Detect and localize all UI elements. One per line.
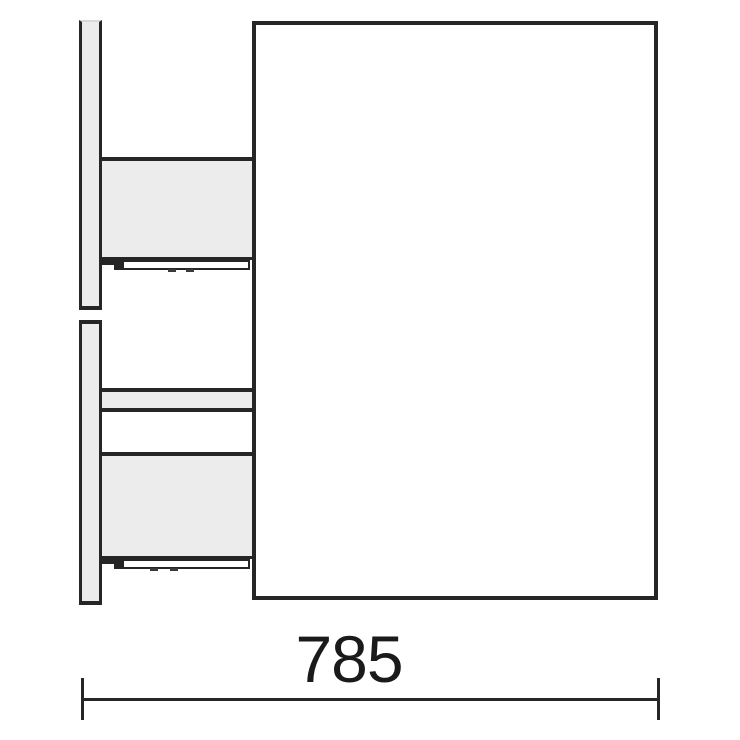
- dimension-tick-right: [657, 678, 660, 720]
- dimension-tick-left: [81, 678, 84, 720]
- cabinet-body-outline: [252, 21, 658, 600]
- lower-drawer-runner: [122, 559, 250, 569]
- upper-drawer-front-panel: [79, 20, 102, 310]
- width-dimension-label: 785: [249, 630, 449, 690]
- lower-drawer-front-panel: [79, 320, 102, 605]
- lower-runner-detail: [170, 568, 178, 571]
- dimension-line: [82, 698, 659, 701]
- technical-drawing-canvas: 785: [0, 0, 740, 740]
- upper-runner-detail: [186, 269, 194, 272]
- upper-runner-detail: [168, 269, 176, 272]
- lower-drawer-box: [102, 452, 252, 559]
- upper-drawer-box: [102, 157, 252, 260]
- middle-cross-rail: [102, 388, 252, 412]
- lower-runner-detail: [150, 568, 158, 571]
